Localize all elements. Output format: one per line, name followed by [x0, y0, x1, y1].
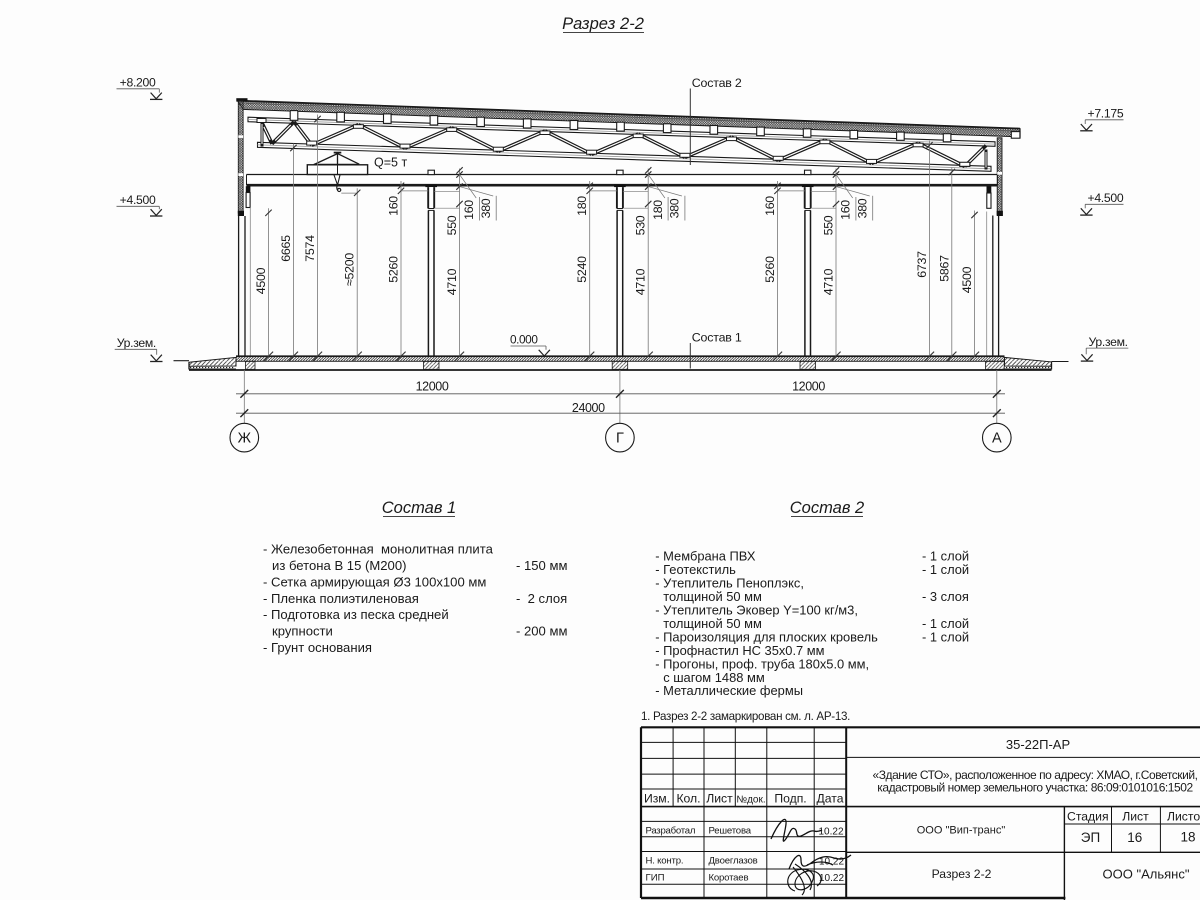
svg-text:Изм.: Изм.: [644, 792, 670, 806]
svg-text:Q=5 т: Q=5 т: [374, 156, 407, 170]
svg-text:160: 160: [763, 196, 777, 216]
svg-text:5260: 5260: [387, 256, 401, 283]
svg-text:крупности: крупности: [272, 624, 333, 639]
svg-text:- Подготовка из песка средней: - Подготовка из песка средней: [263, 607, 449, 622]
svg-text:160: 160: [839, 200, 853, 220]
svg-text:5867: 5867: [937, 255, 951, 282]
svg-text:Стадия: Стадия: [1067, 810, 1109, 824]
svg-text:7574: 7574: [303, 235, 317, 262]
svg-text:550: 550: [822, 215, 836, 235]
svg-text:ГИП: ГИП: [646, 872, 665, 883]
svg-text:≈5200: ≈5200: [343, 253, 357, 286]
svg-text:4500: 4500: [254, 267, 268, 294]
svg-text:+4.500: +4.500: [120, 193, 156, 207]
svg-text:Дата: Дата: [817, 792, 844, 806]
svg-text:160: 160: [387, 196, 401, 216]
svg-text:24000: 24000: [572, 401, 605, 415]
svg-text:5260: 5260: [763, 256, 777, 283]
svg-text:- Грунт основания: - Грунт основания: [263, 640, 372, 655]
svg-text:Ж: Ж: [238, 431, 252, 447]
svg-text:Ур.зем.: Ур.зем.: [117, 336, 156, 350]
svg-text:- 200 мм: - 200 мм: [516, 624, 568, 639]
svg-text:380: 380: [668, 198, 682, 218]
svg-text:Состав 2: Состав 2: [692, 76, 742, 90]
svg-text:Листов: Листов: [1167, 810, 1200, 824]
svg-text:4710: 4710: [634, 268, 648, 295]
svg-text:№док.: №док.: [736, 795, 765, 806]
svg-text:- Пленка полиэтиленовая: - Пленка полиэтиленовая: [263, 591, 419, 606]
svg-text:из бетона В 15 (М200): из бетона В 15 (М200): [272, 558, 407, 573]
svg-text:ООО "Вип-транс": ООО "Вип-транс": [917, 825, 1006, 837]
svg-text:160: 160: [462, 200, 476, 220]
svg-text:35-22П-АР: 35-22П-АР: [1006, 737, 1070, 752]
svg-text:18: 18: [1180, 830, 1195, 845]
svg-text:6737: 6737: [915, 251, 929, 278]
svg-text:5240: 5240: [575, 256, 589, 283]
svg-text:Ур.зем.: Ур.зем.: [1089, 335, 1128, 349]
svg-text:+4.500: +4.500: [1088, 191, 1124, 205]
svg-text:12000: 12000: [792, 380, 825, 394]
svg-text:Двоеглазов: Двоеглазов: [709, 856, 758, 867]
svg-text:+7.175: +7.175: [1088, 107, 1124, 121]
svg-text:10.22: 10.22: [819, 873, 844, 884]
svg-text:Состав 2: Состав 2: [790, 499, 864, 517]
svg-text:ЭП: ЭП: [1081, 830, 1100, 845]
svg-text:- 2 слоя: - 2 слоя: [516, 591, 567, 606]
svg-text:кадастровый номер земельного у: кадастровый номер земельного участка: 86…: [877, 781, 1193, 795]
svg-text:12000: 12000: [416, 380, 449, 394]
svg-text:Подп.: Подп.: [774, 792, 806, 806]
svg-text:- 3 слоя: - 3 слоя: [922, 589, 969, 604]
svg-text:380: 380: [856, 198, 870, 218]
svg-text:- 150 мм: - 150 мм: [516, 558, 568, 573]
svg-text:А: А: [992, 431, 1002, 447]
svg-text:Н. контр.: Н. контр.: [646, 856, 684, 867]
svg-text:Кол.: Кол.: [676, 792, 700, 806]
svg-text:4500: 4500: [960, 266, 974, 293]
svg-text:4710: 4710: [445, 268, 459, 295]
svg-text:16: 16: [1127, 830, 1142, 845]
svg-text:180: 180: [651, 200, 665, 220]
svg-text:Разработал: Разработал: [646, 825, 696, 836]
svg-text:6665: 6665: [279, 235, 293, 262]
svg-text:- Металлические фермы: - Металлические фермы: [655, 683, 803, 698]
svg-text:Состав 1: Состав 1: [692, 330, 742, 344]
svg-text:Г: Г: [616, 431, 624, 447]
svg-text:Лист: Лист: [1122, 810, 1149, 824]
svg-text:ООО "Альянс": ООО "Альянс": [1103, 867, 1190, 882]
svg-text:4710: 4710: [822, 268, 836, 295]
svg-text:+8.200: +8.200: [120, 76, 156, 90]
svg-text:Лист: Лист: [706, 792, 733, 806]
svg-text:- 1 слой: - 1 слой: [922, 629, 969, 644]
svg-text:Коротаев: Коротаев: [709, 872, 749, 883]
svg-text:Решетова: Решетова: [709, 825, 752, 836]
svg-text:Состав 1: Состав 1: [382, 499, 456, 517]
svg-text:- Железобетонная монолитная п: - Железобетонная монолитная плита: [263, 541, 494, 556]
svg-text:Разрез 2-2: Разрез 2-2: [562, 15, 644, 33]
svg-text:- 1 слой: - 1 слой: [922, 562, 969, 577]
svg-text:- Сетка армирующая Ø3 100х100: - Сетка армирующая Ø3 100х100 мм: [263, 574, 486, 589]
svg-text:530: 530: [634, 215, 648, 235]
svg-text:180: 180: [575, 196, 589, 216]
svg-text:1. Разрез 2-2 замаркирован см.: 1. Разрез 2-2 замаркирован см. л. АР-13.: [641, 710, 850, 723]
svg-text:Разрез 2-2: Разрез 2-2: [932, 867, 992, 881]
svg-text:550: 550: [445, 215, 459, 235]
svg-text:380: 380: [479, 198, 493, 218]
svg-text:10.22: 10.22: [819, 826, 844, 837]
svg-text:0.000: 0.000: [510, 333, 538, 347]
